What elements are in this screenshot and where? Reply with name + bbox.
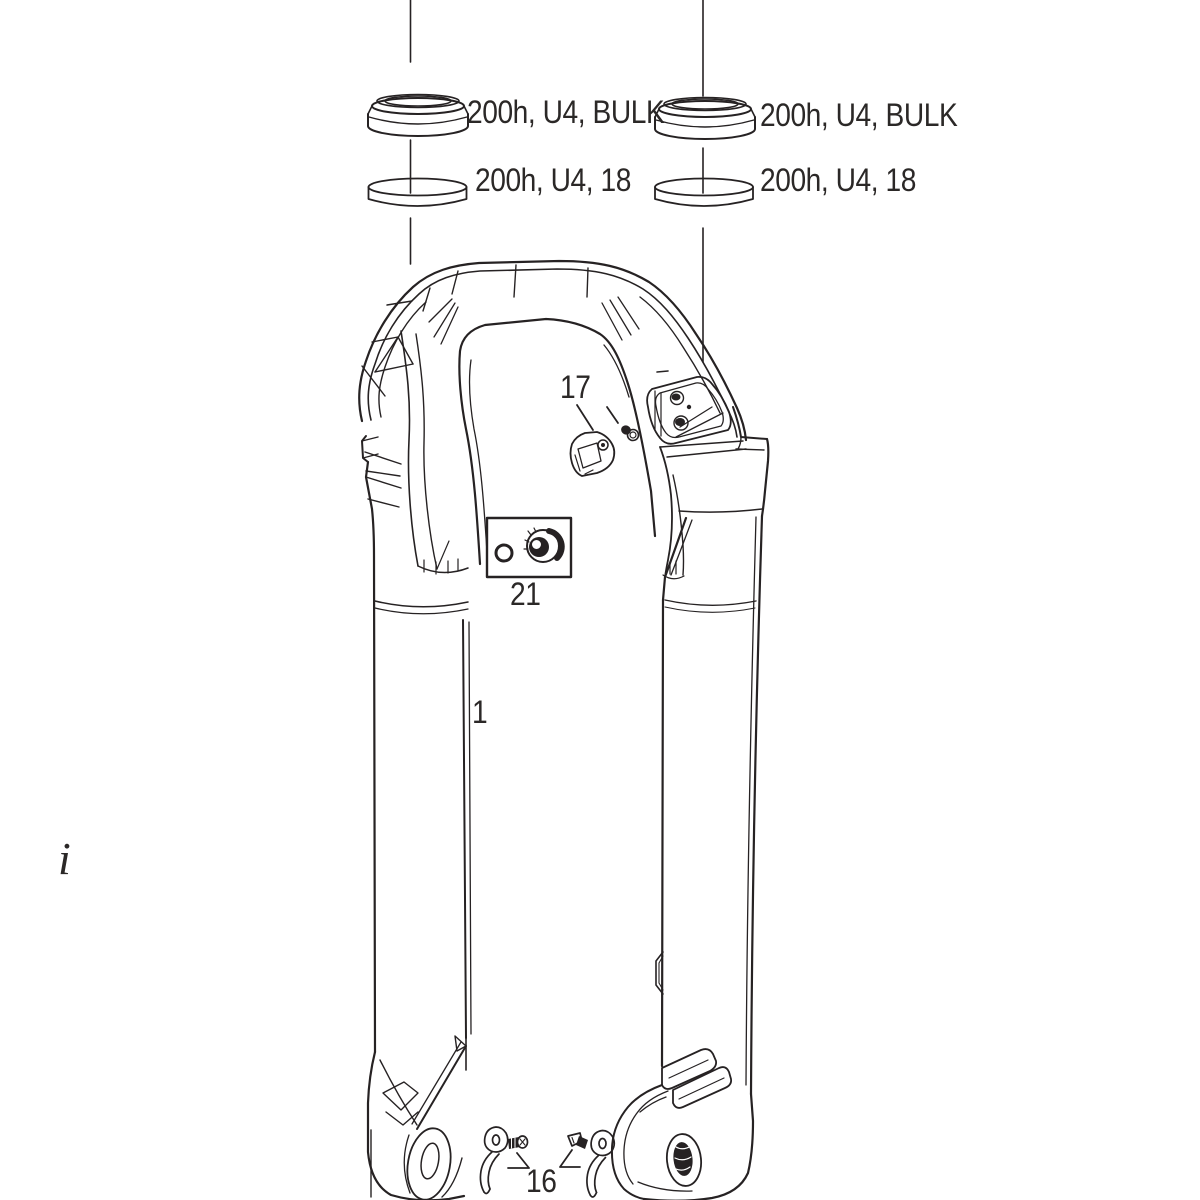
o-ring-part-21 (496, 545, 512, 561)
hose-guide-right-part-16 (587, 1131, 614, 1197)
callout-left-dust-seal: 200h, U4, BULK (467, 96, 664, 128)
callout-right-dust-seal: 200h, U4, BULK (760, 99, 957, 131)
fender-bracket-part-17 (571, 432, 615, 476)
diagram-page: 200h, U4, BULK 200h, U4, BULK 200h, U4, … (0, 0, 1200, 1200)
part-number-16: 16 (526, 1165, 556, 1197)
callout-right-foam-ring: 200h, U4, 18 (760, 164, 916, 196)
part-number-21: 21 (510, 578, 540, 610)
bleed-screw-part-21 (524, 528, 562, 562)
foam-ring-right-drawing (655, 179, 753, 207)
bracket-bolt-part-17 (620, 424, 639, 441)
guide-screw-right-part-16 (568, 1133, 588, 1149)
part-number-1: 1 (472, 696, 487, 728)
callout-left-foam-ring: 200h, U4, 18 (475, 164, 631, 196)
bleed-kit-box-part-21 (487, 518, 571, 577)
leader-lines-part-17 (577, 405, 618, 430)
dust-seal-right-drawing (655, 98, 755, 140)
part-number-17: 17 (560, 371, 590, 403)
cropped-text-fragment: i (58, 836, 71, 882)
guide-screw-left-part-16 (508, 1136, 528, 1149)
